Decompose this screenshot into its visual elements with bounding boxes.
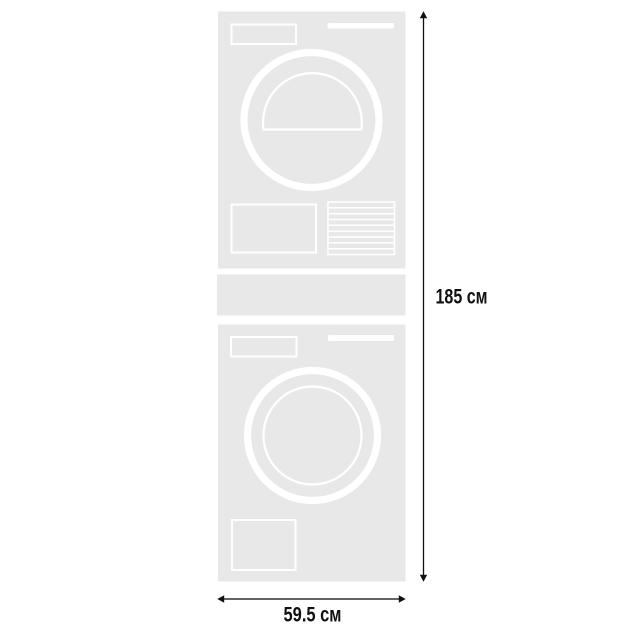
svg-text:59.5 см: 59.5 см	[284, 603, 342, 625]
svg-text:185 см: 185 см	[436, 285, 488, 309]
